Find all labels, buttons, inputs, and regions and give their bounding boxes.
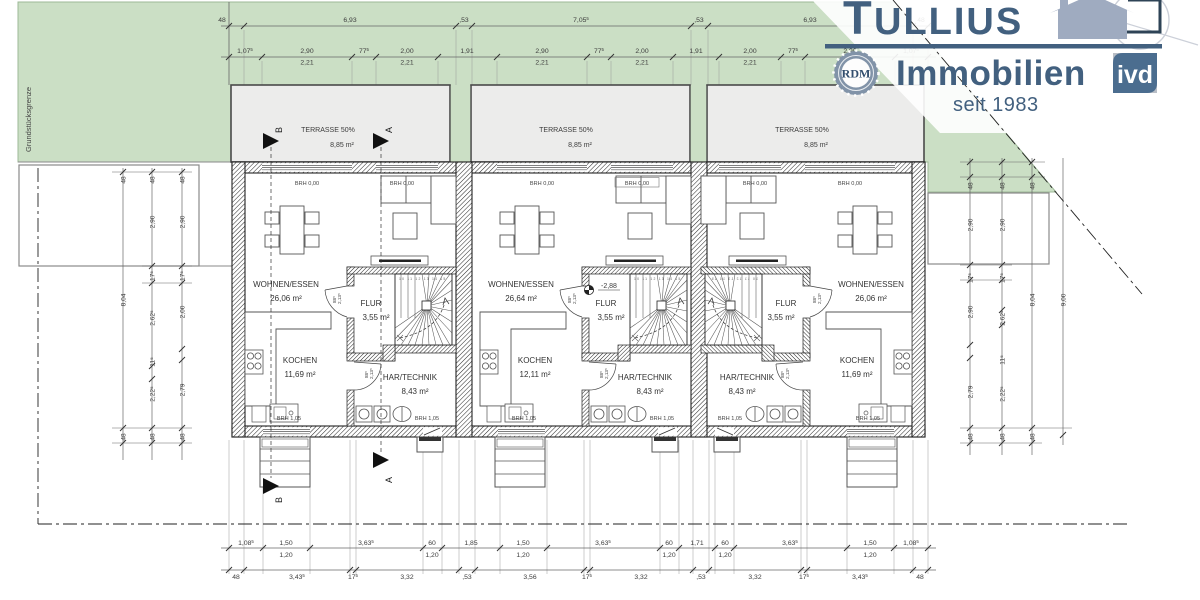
svg-text:FLUR: FLUR (596, 299, 617, 308)
svg-text:-2,88: -2,88 (601, 283, 617, 290)
svg-text:1,20: 1,20 (425, 552, 438, 559)
svg-text:2,90: 2,90 (968, 305, 975, 318)
svg-text:BRH 0,00: BRH 0,00 (838, 181, 862, 187)
svg-text:Grundstücksgrenze: Grundstücksgrenze (24, 87, 33, 152)
svg-text:KOCHEN: KOCHEN (840, 356, 874, 365)
svg-text:2,13⁵: 2,13⁵ (604, 368, 609, 379)
svg-text:8,04: 8,04 (121, 293, 128, 306)
svg-text:,53: ,53 (462, 574, 472, 581)
svg-text:2,00: 2,00 (400, 48, 413, 55)
svg-text:26,64 m²: 26,64 m² (505, 294, 537, 303)
svg-text:17⁵: 17⁵ (180, 271, 187, 281)
svg-text:1,20: 1,20 (718, 552, 731, 559)
svg-text:2,21: 2,21 (400, 60, 413, 67)
svg-text:2,13⁵: 2,13⁵ (337, 293, 342, 304)
svg-text:2,13⁵: 2,13⁵ (817, 293, 822, 304)
svg-text:HAR/TECHNIK: HAR/TECHNIK (720, 373, 775, 382)
svg-text:48: 48 (968, 182, 975, 190)
svg-text:2,90: 2,90 (150, 215, 157, 228)
svg-text:8,43 m²: 8,43 m² (636, 387, 663, 396)
svg-text:BRH 1,05: BRH 1,05 (415, 416, 439, 422)
svg-text:,53: ,53 (694, 17, 704, 24)
svg-text:2,00: 2,00 (635, 48, 648, 55)
svg-text:B: B (274, 127, 284, 133)
svg-text:1,20: 1,20 (279, 552, 292, 559)
svg-text:10 11 12 13 14 15: 10 11 12 13 14 15 (711, 277, 759, 281)
svg-text:3,32: 3,32 (400, 574, 413, 581)
svg-text:17⁵: 17⁵ (150, 271, 157, 281)
svg-text:17⁵: 17⁵ (968, 273, 975, 283)
svg-text:2,62⁵: 2,62⁵ (1000, 310, 1007, 326)
svg-text:WOHNEN/ESSEN: WOHNEN/ESSEN (488, 280, 554, 289)
svg-text:1,71: 1,71 (690, 540, 703, 547)
svg-text:HAR/TECHNIK: HAR/TECHNIK (618, 373, 673, 382)
svg-text:48: 48 (968, 433, 975, 441)
svg-text:3,56: 3,56 (523, 574, 536, 581)
svg-text:60: 60 (428, 540, 436, 547)
svg-text:HAR/TECHNIK: HAR/TECHNIK (383, 373, 438, 382)
svg-text:2,13⁵: 2,13⁵ (572, 293, 577, 304)
svg-text:ULLIUS: ULLIUS (874, 1, 1023, 43)
svg-text:48: 48 (1000, 182, 1007, 190)
svg-text:BRH 0,00: BRH 0,00 (390, 181, 414, 187)
svg-text:TERRASSE 50%: TERRASSE 50% (775, 127, 829, 134)
svg-text:BRH 1,05: BRH 1,05 (277, 416, 301, 422)
svg-text:2,79: 2,79 (180, 383, 187, 396)
svg-text:WOHNEN/ESSEN: WOHNEN/ESSEN (838, 280, 904, 289)
svg-text:3,32: 3,32 (634, 574, 647, 581)
svg-text:3,55 m²: 3,55 m² (767, 313, 794, 322)
svg-text:TERRASSE 50%: TERRASSE 50% (539, 127, 593, 134)
svg-text:11⁵: 11⁵ (150, 357, 157, 367)
svg-text:48: 48 (121, 176, 128, 184)
svg-text:RDM: RDM (842, 67, 871, 81)
svg-text:48: 48 (1030, 182, 1037, 190)
svg-text:48: 48 (916, 574, 924, 581)
svg-text:2,90: 2,90 (968, 218, 975, 231)
svg-text:BRH 1,05: BRH 1,05 (650, 416, 674, 422)
svg-text:1,91: 1,91 (460, 48, 473, 55)
svg-text:2,21: 2,21 (743, 60, 756, 67)
svg-text:Immobilien: Immobilien (896, 54, 1086, 93)
svg-text:2,90: 2,90 (180, 215, 187, 228)
svg-text:2,22⁵: 2,22⁵ (1000, 386, 1007, 402)
svg-text:WOHNEN/ESSEN: WOHNEN/ESSEN (253, 280, 319, 289)
svg-text:2,90: 2,90 (1000, 218, 1007, 231)
svg-text:seit 1983: seit 1983 (953, 94, 1039, 116)
svg-text:11⁵: 11⁵ (1000, 355, 1007, 365)
svg-text:60: 60 (721, 540, 729, 547)
svg-text:2,13⁵: 2,13⁵ (785, 368, 790, 379)
svg-text:TERRASSE 50%: TERRASSE 50% (301, 127, 355, 134)
svg-text:KOCHEN: KOCHEN (283, 356, 317, 365)
svg-text:BRH 1,05: BRH 1,05 (856, 416, 880, 422)
svg-text:26,06 m²: 26,06 m² (270, 294, 302, 303)
svg-text:6,93: 6,93 (343, 17, 356, 24)
svg-text:B: B (274, 497, 284, 503)
svg-text:12,11 m²: 12,11 m² (520, 370, 551, 379)
svg-text:6,93: 6,93 (803, 17, 816, 24)
svg-text:3,55 m²: 3,55 m² (362, 313, 389, 322)
svg-text:2,21: 2,21 (300, 60, 313, 67)
svg-text:ivd: ivd (1117, 61, 1153, 89)
svg-text:17⁵: 17⁵ (1000, 273, 1007, 283)
svg-text:60: 60 (665, 540, 673, 547)
svg-text:3,55 m²: 3,55 m² (597, 313, 624, 322)
svg-text:8,43 m²: 8,43 m² (401, 387, 428, 396)
svg-text:BRH 1,05: BRH 1,05 (718, 416, 742, 422)
svg-text:48: 48 (180, 433, 187, 441)
svg-text:26,06 m²: 26,06 m² (855, 294, 887, 303)
svg-text:48: 48 (121, 433, 128, 441)
svg-text:8,85 m²: 8,85 m² (330, 142, 354, 149)
svg-text:2,22⁵: 2,22⁵ (150, 386, 157, 402)
svg-text:9,00: 9,00 (1061, 293, 1068, 306)
svg-text:8,04: 8,04 (1030, 293, 1037, 306)
svg-text:48: 48 (1000, 433, 1007, 441)
svg-text:48: 48 (1030, 433, 1037, 441)
svg-text:1,91: 1,91 (689, 48, 702, 55)
svg-text:BRH 1,05: BRH 1,05 (512, 416, 536, 422)
svg-text:A: A (384, 477, 394, 483)
svg-text:2,62⁵: 2,62⁵ (150, 310, 157, 326)
svg-text:2,79: 2,79 (968, 385, 975, 398)
svg-text:T: T (843, 0, 872, 44)
svg-text:FLUR: FLUR (776, 299, 797, 308)
svg-text:1,20: 1,20 (662, 552, 675, 559)
svg-text:A: A (384, 127, 394, 133)
svg-text:BRH 0,00: BRH 0,00 (295, 181, 319, 187)
svg-text:2,00: 2,00 (180, 305, 187, 318)
svg-text:10 11 12 13 14 15: 10 11 12 13 14 15 (634, 277, 682, 281)
svg-text:8,85 m²: 8,85 m² (568, 142, 592, 149)
svg-text:BRH 0,00: BRH 0,00 (743, 181, 767, 187)
svg-text:48: 48 (150, 176, 157, 184)
svg-text:BRH 0,00: BRH 0,00 (530, 181, 554, 187)
svg-text:11,69 m²: 11,69 m² (285, 370, 316, 379)
svg-text:48: 48 (150, 433, 157, 441)
svg-text:10 11 12 13 14 15: 10 11 12 13 14 15 (399, 277, 447, 281)
svg-text:KOCHEN: KOCHEN (518, 356, 552, 365)
svg-text:,53: ,53 (696, 574, 706, 581)
svg-text:8,85 m²: 8,85 m² (804, 142, 828, 149)
svg-text:3,32: 3,32 (748, 574, 761, 581)
svg-text:2,21: 2,21 (535, 60, 548, 67)
svg-text:2,21: 2,21 (635, 60, 648, 67)
svg-text:48: 48 (180, 176, 187, 184)
svg-text:11,69 m²: 11,69 m² (842, 370, 873, 379)
svg-text:1,50: 1,50 (516, 540, 529, 547)
svg-text:BRH 0,00: BRH 0,00 (625, 181, 649, 187)
svg-text:2,90: 2,90 (535, 48, 548, 55)
svg-text:,53: ,53 (459, 17, 469, 24)
svg-text:2,13⁵: 2,13⁵ (369, 368, 374, 379)
svg-text:48: 48 (232, 574, 240, 581)
svg-text:1,20: 1,20 (863, 552, 876, 559)
svg-text:2,00: 2,00 (743, 48, 756, 55)
svg-text:1,85: 1,85 (464, 540, 477, 547)
svg-text:8,43 m²: 8,43 m² (728, 387, 755, 396)
svg-text:1,20: 1,20 (516, 552, 529, 559)
svg-text:1,50: 1,50 (279, 540, 292, 547)
svg-text:48: 48 (218, 17, 226, 24)
svg-text:2,90: 2,90 (300, 48, 313, 55)
svg-text:FLUR: FLUR (361, 299, 382, 308)
svg-text:1,50: 1,50 (863, 540, 876, 547)
